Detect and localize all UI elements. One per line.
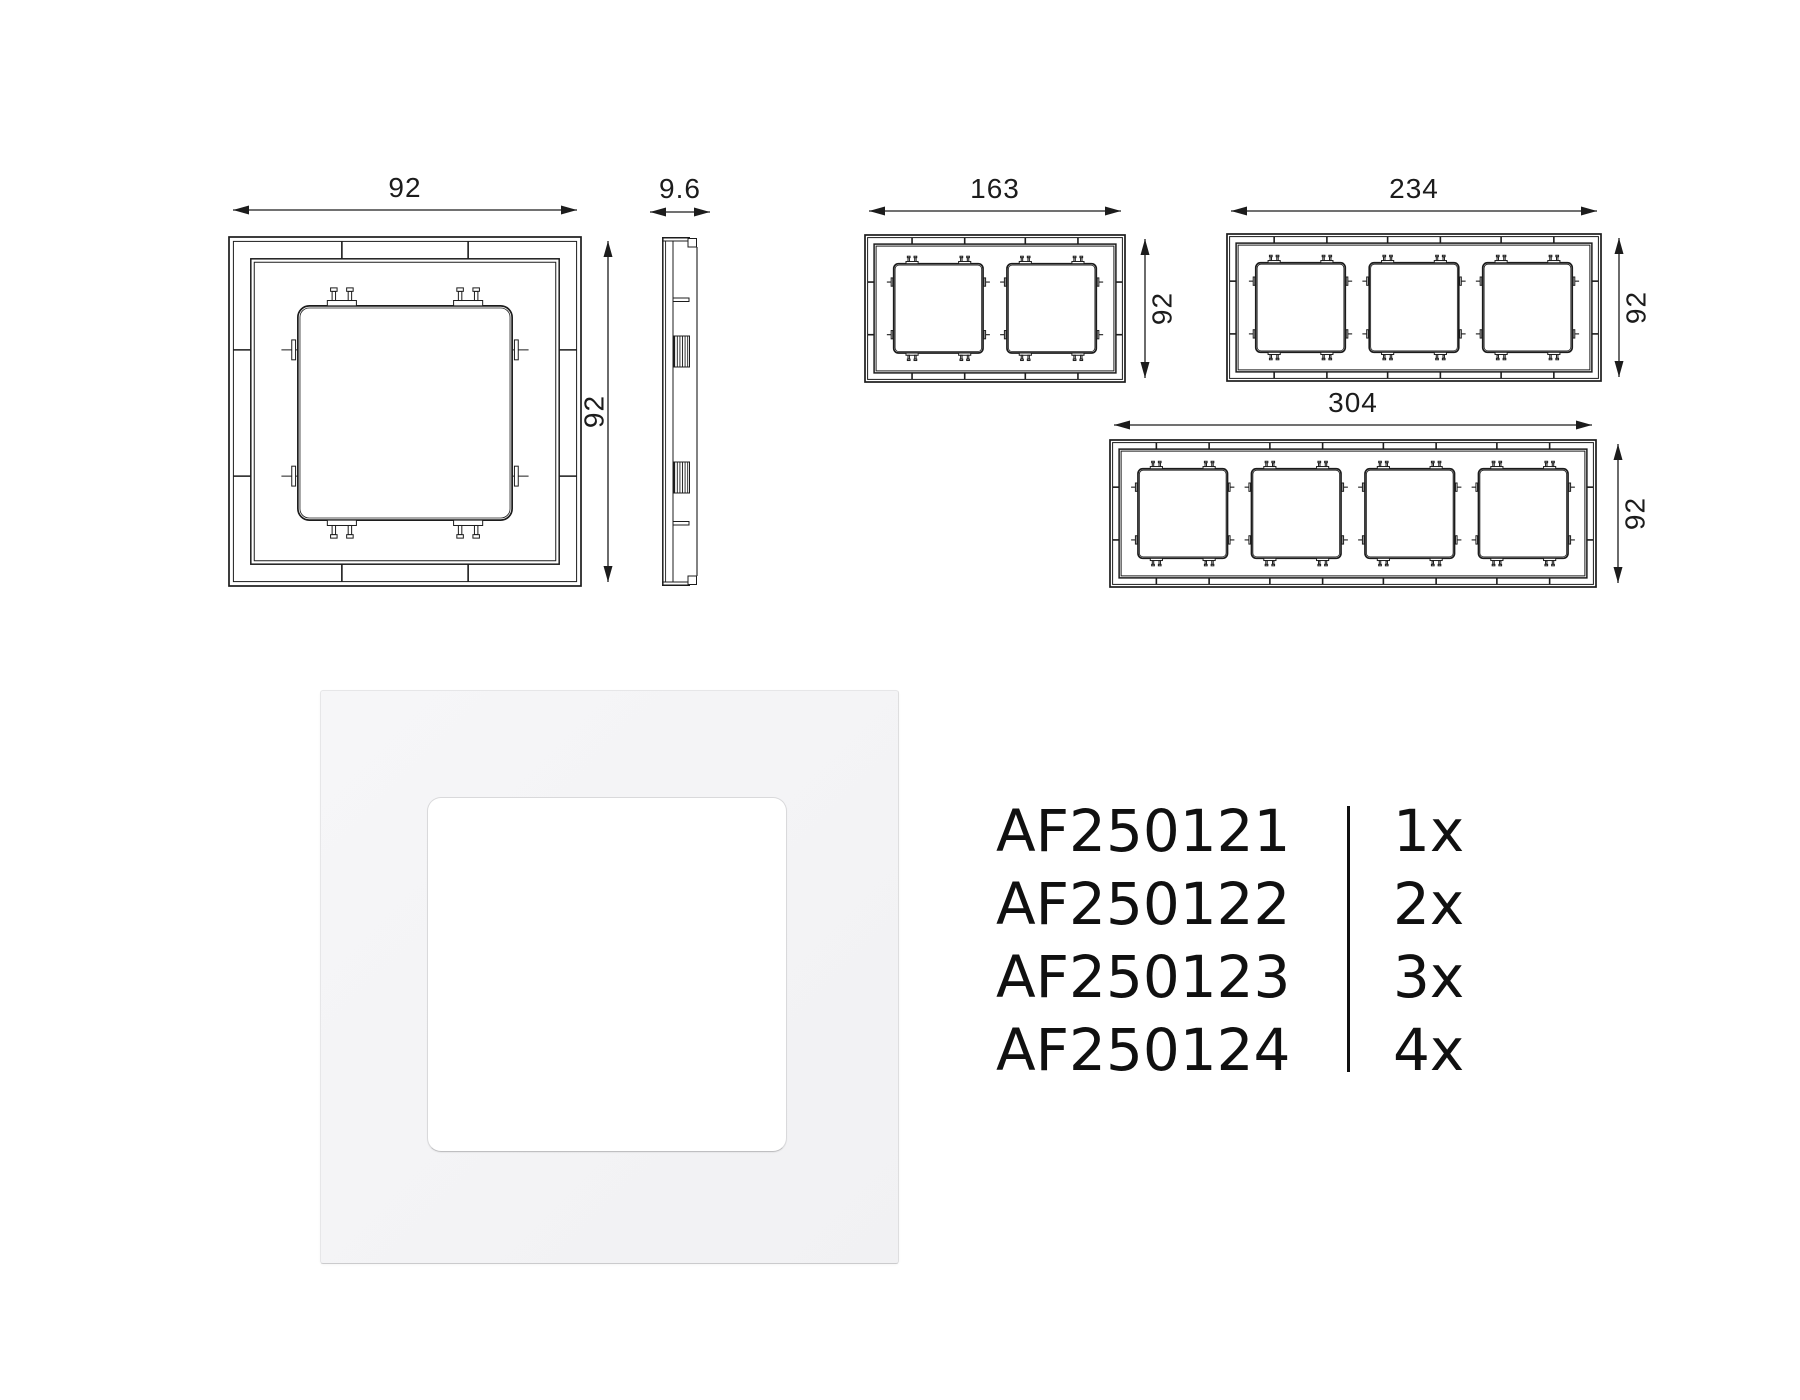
dimension-label: 92 <box>1147 292 1178 325</box>
part-code: AF250121 <box>996 794 1347 867</box>
frame-2-gang: 16392 <box>865 173 1178 382</box>
dimension-label: 92 <box>388 172 421 203</box>
dimension-label: 234 <box>1389 173 1439 204</box>
parts-list-divider <box>1347 806 1350 1072</box>
part-qty: 3x <box>1393 940 1464 1013</box>
part-qtys-column: 1x2x3x4x <box>1393 794 1464 1086</box>
dimension-label: 163 <box>970 173 1020 204</box>
part-codes-column: AF250121AF250122AF250123AF250124 <box>996 794 1347 1086</box>
dimension-label: 92 <box>1621 291 1652 324</box>
part-qty: 1x <box>1393 794 1464 867</box>
technical-drawing: 92921639223492304929.6 <box>0 0 1800 1400</box>
part-code: AF250122 <box>996 867 1347 940</box>
dimension-label: 9.6 <box>659 173 701 204</box>
part-qty: 4x <box>1393 1013 1464 1086</box>
datasheet-page: { "colors": { "line": "#1c1c1c", "text":… <box>0 0 1800 1400</box>
side-view-1-gang: 9.6 <box>650 173 710 585</box>
part-code: AF250123 <box>996 940 1347 1013</box>
frame-4-gang: 30492 <box>1110 387 1651 587</box>
frame-3-gang: 23492 <box>1227 173 1652 381</box>
part-code: AF250124 <box>996 1013 1347 1086</box>
frame-1-gang: 9292 <box>229 172 613 586</box>
parts-list: AF250121AF250122AF250123AF250124 1x2x3x4… <box>996 794 1464 1086</box>
dimension-label: 92 <box>1620 497 1651 530</box>
product-photo-window <box>427 797 787 1152</box>
part-qty: 2x <box>1393 867 1464 940</box>
product-photo <box>320 690 899 1264</box>
dimension-label: 304 <box>1328 387 1378 418</box>
dimension-label: 92 <box>579 395 610 428</box>
